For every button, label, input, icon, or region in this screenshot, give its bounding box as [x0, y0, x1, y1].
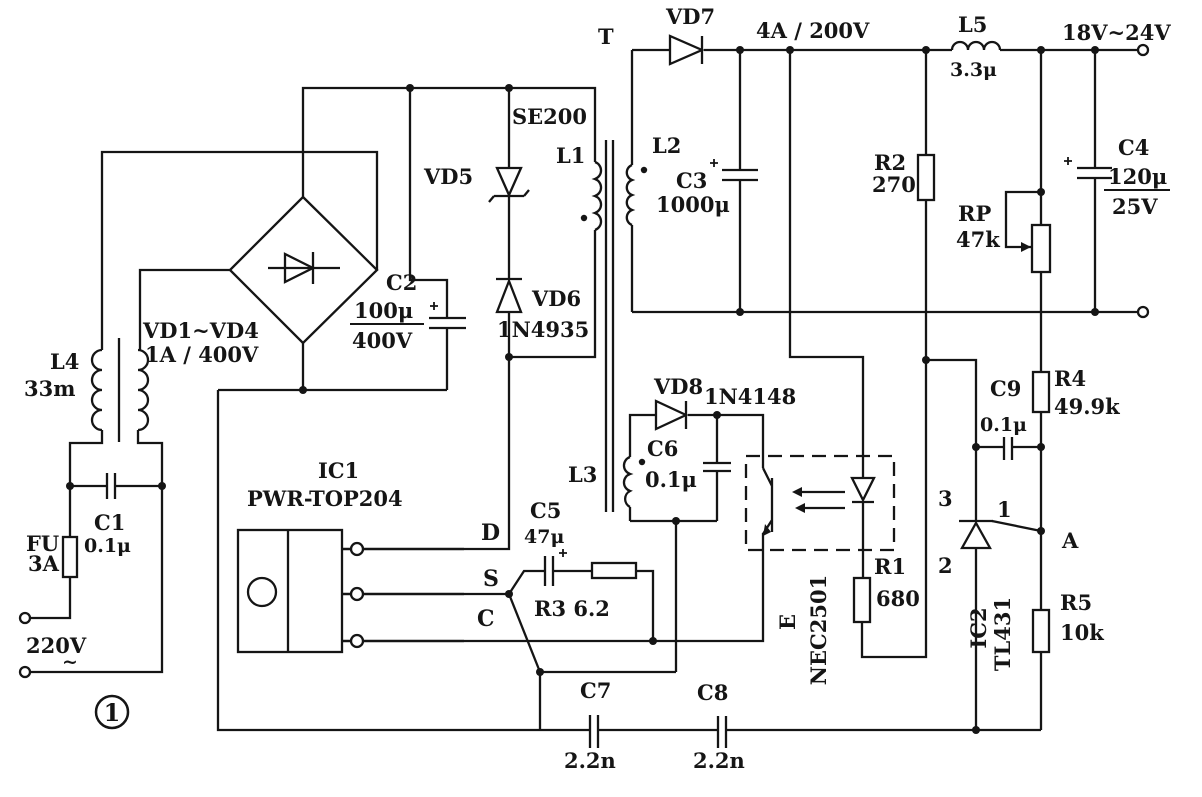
- label-r1-value: 680: [876, 586, 920, 611]
- label-c8-value: 2.2n: [693, 748, 745, 773]
- label-c2: C2: [386, 270, 417, 295]
- label-figure-number: 1: [104, 698, 121, 727]
- wire-c2: [410, 88, 447, 390]
- resistor-r4: [1033, 372, 1049, 412]
- output-terminal-plus: [1138, 45, 1148, 55]
- ic1-package: [238, 530, 464, 652]
- power-supply-schematic: T VD7 4A / 200V L5 3.3μ 18V~24V SE200 VD…: [0, 0, 1202, 797]
- light-arrows: [792, 487, 845, 513]
- label-l5: L5: [958, 12, 987, 37]
- label-r2-value: 270: [872, 172, 916, 197]
- label-opto-e: E: [775, 614, 800, 630]
- label-r1: R1: [874, 554, 906, 579]
- resistor-r1: [854, 578, 870, 622]
- winding-l2: [627, 165, 647, 225]
- ic1-leads: [342, 543, 464, 647]
- label-c4-voltage: 25V: [1112, 194, 1158, 219]
- label-c1: C1: [94, 510, 125, 535]
- label-l4: L4: [50, 349, 79, 374]
- capacitor-c3: [710, 159, 758, 180]
- winding-l1: [581, 162, 601, 230]
- capacitor-c4: [1064, 157, 1112, 178]
- diode-vd6: [496, 279, 522, 312]
- tl431-symbol: [959, 521, 993, 548]
- label-pin-d: D: [481, 520, 500, 546]
- label-l5-value: 3.3μ: [950, 59, 997, 81]
- label-c2-voltage: 400V: [352, 328, 413, 353]
- label-opto-part: NEC2501: [806, 575, 831, 685]
- resistor-r5: [1033, 610, 1049, 652]
- capacitor-c5: [545, 549, 567, 586]
- label-output-range: 18V~24V: [1062, 20, 1171, 45]
- diode-vd8: [656, 401, 686, 429]
- label-tl431-a: A: [1061, 528, 1079, 553]
- label-bridge-name: VD1~VD4: [142, 318, 259, 343]
- label-ic1: IC1: [318, 458, 359, 483]
- label-bridge-rating: 1A / 400V: [145, 342, 259, 367]
- label-tl431-pin2: 2: [938, 553, 953, 578]
- label-ic1-part: PWR-TOP204: [247, 486, 403, 511]
- inductor-l5: [952, 42, 1000, 50]
- label-c7: C7: [580, 678, 611, 703]
- label-t: T: [598, 24, 614, 49]
- transformer-core: [606, 140, 613, 512]
- fuse-fu: [63, 537, 77, 577]
- label-r3: R3 6.2: [534, 596, 610, 621]
- label-fu-value: 3A: [28, 551, 60, 576]
- label-vd8: VD8: [653, 374, 703, 399]
- label-se200: SE200: [512, 104, 587, 129]
- label-ic2-part: TL431: [990, 597, 1015, 671]
- phototransistor: [763, 468, 772, 534]
- label-vd5: VD5: [423, 164, 473, 189]
- label-pin-s: S: [483, 566, 499, 592]
- label-l1: L1: [556, 143, 585, 168]
- winding-l3: [624, 457, 645, 507]
- label-tl431-pin1: 1: [997, 497, 1012, 522]
- label-c1-value: 0.1μ: [84, 535, 131, 557]
- label-c9: C9: [990, 376, 1021, 401]
- label-c5-value: 47μ: [524, 526, 564, 548]
- label-c3-value: 1000μ: [656, 192, 730, 217]
- mains-terminal-neutral: [20, 667, 30, 677]
- label-rp-value: 47k: [956, 227, 1000, 252]
- label-c2-capacitance: 100μ: [354, 298, 413, 323]
- diode-vd5: [489, 168, 529, 202]
- schematic-page: T VD7 4A / 200V L5 3.3μ 18V~24V SE200 VD…: [0, 0, 1202, 797]
- opto-led: [852, 478, 874, 502]
- diode-vd7: [670, 36, 702, 64]
- optocoupler: [746, 456, 894, 550]
- label-ic2: IC2: [966, 607, 991, 648]
- label-vd6: VD6: [531, 286, 581, 311]
- label-r5: R5: [1060, 590, 1092, 615]
- label-vd6-part: 1N4935: [497, 317, 589, 342]
- label-l2: L2: [652, 133, 681, 158]
- label-l4-value: 33m: [24, 376, 75, 401]
- label-rp: RP: [958, 201, 991, 226]
- label-r4-value: 49.9k: [1054, 394, 1120, 419]
- label-mains-tilde: ~: [62, 651, 78, 673]
- label-c8: C8: [697, 680, 728, 705]
- label-vd7: VD7: [665, 4, 715, 29]
- label-c4-capacitance: 120μ: [1108, 164, 1167, 189]
- label-c6-value: 0.1μ: [645, 467, 697, 492]
- mains-terminal-live: [20, 613, 30, 623]
- capacitor-c9: [1004, 437, 1012, 460]
- potentiometer-rp: [1021, 225, 1050, 272]
- label-out-rating: 4A / 200V: [756, 18, 870, 43]
- output-terminal-minus: [1138, 307, 1148, 317]
- label-pin-c: C: [477, 606, 495, 632]
- label-c7-value: 2.2n: [564, 748, 616, 773]
- label-vd8-part: 1N4148: [704, 384, 796, 409]
- label-c6: C6: [647, 436, 678, 461]
- label-c5: C5: [530, 498, 561, 523]
- label-c4: C4: [1118, 135, 1149, 160]
- capacitor-c6: [703, 463, 731, 471]
- resistor-r2: [918, 155, 934, 200]
- capacitor-c7: [590, 715, 598, 748]
- capacitor-c1: [107, 473, 115, 499]
- label-r5-value: 10k: [1060, 620, 1104, 645]
- capacitor-c8: [718, 716, 726, 748]
- resistor-r3: [592, 563, 636, 578]
- label-l3: L3: [568, 462, 597, 487]
- label-c3: C3: [676, 168, 707, 193]
- label-r4: R4: [1054, 366, 1086, 391]
- label-c9-value: 0.1μ: [980, 414, 1027, 436]
- label-tl431-pin3: 3: [938, 486, 953, 511]
